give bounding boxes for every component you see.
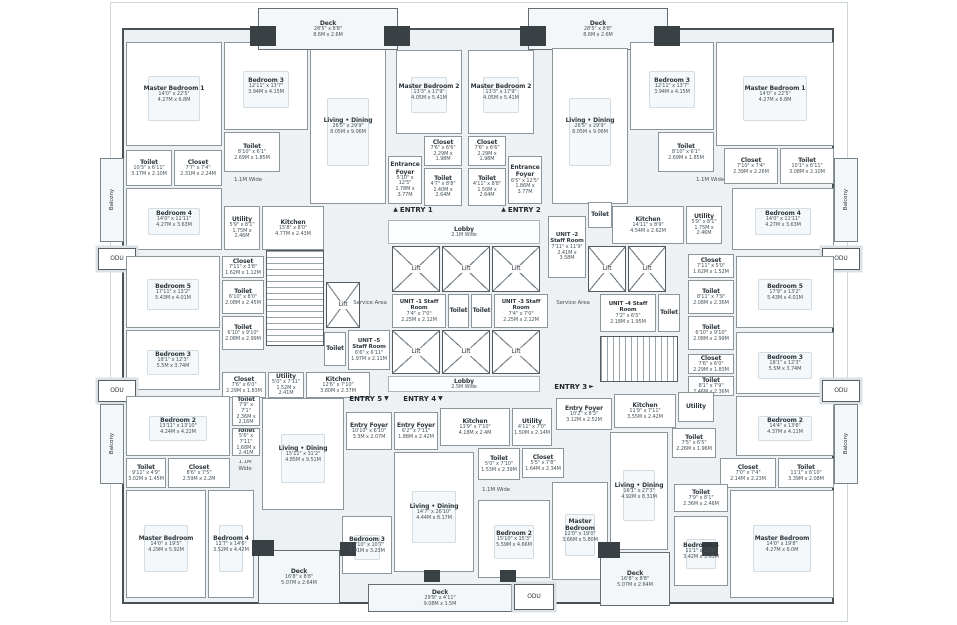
- master-bedroom-2-left-dimensions: 4.05M x 5.41M: [411, 96, 447, 102]
- living-dining-bottom-center-dimensions: 4.44M x 8.17M: [416, 516, 452, 522]
- toilet-mb2-right-dimensions: 1.50M x 2.64M: [470, 188, 504, 200]
- toilet-unit2: Toilet: [588, 202, 612, 228]
- lobby-bottom: Lobby2.5M Wide: [388, 376, 540, 392]
- closet-bottom-center-dimensions: 1.64M x 2.34M: [525, 467, 561, 473]
- living-dining-top-right: Living • Dining26'5" x 29'9"8.05M x 9.06…: [552, 48, 628, 204]
- closet-mb1-left: Closet7'7" x 7'4"2.31M x 2.24M: [174, 150, 222, 186]
- lift-east-1: Lift: [588, 246, 626, 292]
- toilet-bedroom5-east-dimensions: 2.08M x 2.36M: [693, 301, 729, 307]
- corridor-width-bottom-left: 1.1M Wide: [230, 460, 260, 472]
- closet-mb2-right: Closet7'6" x 6'6"2.29M x 1.98M: [468, 136, 506, 166]
- service-area-west: Service Area: [348, 288, 392, 318]
- deck-bottom-right: Deck16'8" x 8'8"5.07M x 2.64M: [600, 552, 670, 606]
- deck-top-right-dimensions: 8.6M x 2.6M: [583, 33, 613, 39]
- toilet-bottom-center-dimensions: 1.53M x 2.39M: [481, 468, 517, 474]
- lift-5-label: Lift: [460, 348, 473, 355]
- entry-3-arrow-icon: ►: [589, 384, 594, 390]
- deck-top-left-dimensions: 8.6M x 2.6M: [313, 33, 343, 39]
- toilet-bedroom3-east-dimensions: 2.08M x 2.99M: [693, 337, 729, 343]
- toilet-unit5-label: Toilet: [326, 345, 344, 352]
- odu-south-center-label: ODU: [527, 593, 540, 600]
- closet-bottom-right-dimensions: 2.14M x 2.23M: [730, 477, 766, 483]
- closet-mb1-right-dimensions: 2.39M x 2.26M: [733, 170, 769, 176]
- balcony-southeast-label: Balcony: [843, 433, 850, 454]
- utility-bottom-right: Utility: [678, 392, 714, 422]
- wall-block: [520, 26, 546, 46]
- lobby-top: Lobby2.1M Wide: [388, 220, 540, 244]
- utility-bottom-center-dimensions: 1.50M x 2.14M: [514, 431, 550, 437]
- toilet-mb2-left-dimensions: 1.40M x 2.64M: [426, 188, 460, 200]
- bedroom-3-top-left: Bedroom 312'11" x 13'7"3.94M x 4.15M: [224, 42, 308, 130]
- toilet-bedroom3-right: Toilet8'10" x 6'1"2.69M x 1.85M: [658, 132, 714, 172]
- balcony-west: Balcony4'5" x 12'10"1.35M x 3.91M: [100, 158, 124, 242]
- toilet-core-1-label: Toilet: [450, 307, 468, 314]
- kitchen-bottom-right: Kitchen11'9" x 7'11"3.55M x 2.42M: [614, 394, 676, 428]
- entrance-foyer-1-label: Entrance Foyer: [390, 161, 420, 175]
- toilet-bottom-left-1-dimensions: 7'9" x 7'1": [234, 403, 258, 415]
- bedroom-4-west-dimensions: 4.27M x 3.63M: [156, 223, 192, 229]
- unit-2-staff-room-label: UNIT -2 Staff Room: [550, 232, 584, 245]
- toilet-unit5: Toilet: [324, 332, 346, 366]
- toilet-mb2-right: Toilet4'11" x 8'8"1.50M x 2.64M: [468, 168, 506, 206]
- entry-4-label: ENTRY 4: [403, 395, 436, 403]
- closet-bedroom5-east-dimensions: 1.62M x 1.52M: [693, 270, 729, 276]
- lift-east-1-label: Lift: [601, 265, 614, 272]
- entry-foyer-5: Entry Foyer10'10" x 6'10"3.3M x 2.07M: [346, 412, 392, 450]
- living-dining-bottom-right: Living • Dining16'1" x 27'3"4.92M x 8.31…: [610, 432, 668, 550]
- master-bedroom-1-right: Master Bedroom 114'0" x 22'5"4.27M x 6.8…: [716, 42, 834, 146]
- unit-1-staff-room-label: UNIT -1 Staff Room: [394, 299, 444, 312]
- odu-west-label: ODU: [110, 255, 123, 262]
- closet-bedroom5-west-dimensions: 1.62M x 1.12M: [225, 271, 261, 277]
- entry-5-label: ENTRY 5: [349, 395, 382, 403]
- lift-2-label: Lift: [460, 265, 473, 272]
- entry-1-label: ENTRY 1: [400, 206, 433, 214]
- unit-4-staff-room-label: UNIT -4 Staff Room: [602, 301, 654, 314]
- closet-mb1-left-dimensions: 2.31M x 2.24M: [180, 172, 216, 178]
- toilet-bedroom5-east: Toilet8'11" x 7'9"2.08M x 2.36M: [688, 280, 734, 314]
- bedroom-4-bottom-right-dimensions: 3.42M x 3.65M: [683, 555, 719, 561]
- toilet-mb1-right: Toilet10'1" x 6'11"3.08M x 2.10M: [780, 148, 834, 184]
- entry-2-arrow-icon: ▲: [501, 207, 506, 213]
- balcony-southwest-label: Balcony: [109, 433, 116, 454]
- wall-block: [598, 542, 620, 558]
- entry-5: ENTRY 5▼: [344, 392, 394, 406]
- lift-east-2: Lift: [628, 246, 666, 292]
- toilet-core-1: Toilet: [448, 294, 469, 328]
- entry-5-arrow-icon: ▼: [384, 396, 389, 402]
- bedroom-4-west: Bedroom 414'0" x 11'11"4.27M x 3.63M: [126, 188, 222, 250]
- toilet-mb1-left-dimensions: 3.17M x 2.10M: [131, 172, 167, 178]
- odu-southeast-label: ODU: [834, 387, 847, 394]
- toilet-bedroom3-left-dimensions: 2.69M x 1.85M: [234, 156, 270, 162]
- entrance-foyer-2-dimensions: 1.86M x 3.77M: [510, 184, 540, 196]
- toilet-bottom-center: Toilet5'0" x 7'10"1.53M x 2.39M: [478, 448, 520, 480]
- utility-east: Utility5'9" x 8'1"1.75M x 2.46M: [686, 206, 722, 244]
- lift-6-label: Lift: [510, 348, 523, 355]
- toilet-bottom-right-1: Toilet7'5" x 6'5"2.26M x 1.96M: [672, 428, 716, 458]
- odu-southwest-label: ODU: [110, 387, 123, 394]
- utility-west: Utility5'9" x 8'1"1.75M x 2.46M: [224, 206, 260, 250]
- lift-4: Lift: [392, 330, 440, 374]
- master-bedroom-bottom-left-dimensions: 4.29M x 5.92M: [148, 548, 184, 554]
- entry-foyer-4: Entry Foyer6'2" x 7'11"1.88M x 2.42M: [394, 412, 438, 450]
- toilet-bedroom3-left: Toilet8'10" x 6'1"2.69M x 1.85M: [224, 132, 280, 172]
- entrance-foyer-1-dimensions: 1.78M x 3.77M: [390, 187, 420, 199]
- corridor-width-top-right-label: 1.1M Wide: [696, 177, 724, 184]
- corridor-width-bottom-left-label: 1.1M Wide: [231, 460, 259, 472]
- closet-mb2-left: Closet7'6" x 6'6"2.29M x 1.98M: [424, 136, 462, 166]
- toilet-unit4: Toilet: [658, 294, 680, 332]
- entry-foyer-3: Entry Foyer10'2" x 8'3"3.12M x 2.52M: [556, 398, 612, 430]
- toilet-bottom-right-3: Toilet7'9" x 8'1"2.36M x 2.46M: [674, 484, 728, 512]
- lift-3: Lift: [492, 246, 540, 292]
- lobby-bottom-dimensions: 2.5M Wide: [451, 385, 476, 391]
- lift-1: Lift: [392, 246, 440, 292]
- toilet-unit4-label: Toilet: [660, 309, 678, 316]
- bedroom-2-bottom-right-dimensions: 4.37M x 4.11M: [767, 430, 803, 436]
- toilet-bottom-right-2: Toilet11'1" x 6'10"3.39M x 2.08M: [778, 458, 834, 488]
- service-area-west-label: Service Area: [353, 300, 387, 307]
- corridor-width-top-left: 1.1M Wide: [228, 174, 268, 186]
- bedroom-4-east: Bedroom 414'0" x 11'11"4.27M x 3.63M: [732, 188, 834, 250]
- bedroom-3-top-left-dimensions: 3.94M x 4.15M: [248, 90, 284, 96]
- toilet-mb1-left: Toilet10'3" x 6'11"3.17M x 2.10M: [126, 150, 172, 186]
- lift-east-2-label: Lift: [641, 265, 654, 272]
- toilet-bottom-left-3: Toilet9'11" x 4'9"3.02M x 1.45M: [126, 458, 166, 488]
- entrance-foyer-1: Entrance Foyer5'10" x 12'5"1.78M x 3.77M: [388, 156, 422, 204]
- master-bedroom-1-left: Master Bedroom 114'0" x 22'5"4.27M x 6.8…: [126, 42, 222, 146]
- odu-southeast: ODU: [822, 380, 860, 402]
- bedroom-2-bottom-left-dimensions: 4.24M x 4.22M: [160, 430, 196, 436]
- utility-bottom-right-label: Utility: [686, 403, 706, 410]
- toilet-bottom-left-1: Toilet7'9" x 7'1"2.36M x 2.16M: [232, 396, 260, 426]
- toilet-bottom-left-2-dimensions: 5'6" x 7'11": [234, 434, 258, 446]
- wall-block: [250, 26, 276, 46]
- master-bedroom-bottom-left: Master Bedroom14'0" x 19'5"4.29M x 5.92M: [126, 490, 206, 598]
- closet-mb2-left-dimensions: 2.29M x 1.98M: [426, 152, 460, 164]
- bedroom-2-bottom-center-dimensions: 5.59M x 4.66M: [496, 543, 532, 549]
- closet-west-2-dimensions: 2.29M x 1.83M: [226, 389, 262, 395]
- bedroom-3-west-dimensions: 5.5M x 3.74M: [157, 364, 190, 370]
- lift-2: Lift: [442, 246, 490, 292]
- stairs-west: [266, 250, 324, 346]
- wall-block: [252, 540, 274, 556]
- unit-4-staff-room: UNIT -4 Staff Room7'2" x 6'5"2.18M x 1.9…: [600, 294, 656, 332]
- master-bedroom-bottom-center-dimensions: 3.66M x 5.80M: [562, 538, 598, 544]
- closet-bedroom5-west: Closet7'11" x 3'8"1.62M x 1.12M: [222, 256, 264, 278]
- bedroom-5-west: Bedroom 517'11" x 13'2"5.43M x 4.01M: [126, 256, 220, 328]
- unit-4-staff-room-dimensions: 2.18M x 1.95M: [610, 320, 646, 326]
- lift-4-label: Lift: [410, 348, 423, 355]
- toilet-bedroom3-right-dimensions: 2.69M x 1.85M: [668, 156, 704, 162]
- lobby-top-dimensions: 2.1M Wide: [451, 233, 476, 239]
- lift-5: Lift: [442, 330, 490, 374]
- bedroom-3-east: Bedroom 318'1" x 12'3"5.5M x 3.74M: [736, 332, 834, 394]
- living-dining-bottom-right-dimensions: 4.92M x 8.31M: [621, 495, 657, 501]
- toilet-bottom-right-2-dimensions: 3.39M x 2.08M: [788, 477, 824, 483]
- deck-bottom-right-dimensions: 5.07M x 2.64M: [617, 583, 653, 589]
- deck-bottom-left: Deck16'8" x 8'8"5.07M x 2.64M: [258, 550, 340, 604]
- bedroom-5-east-dimensions: 5.43M x 4.01M: [767, 296, 803, 302]
- entry-2-label: ENTRY 2: [508, 206, 541, 214]
- toilet-bedroom3-east: Toilet6'10" x 9'10"2.08M x 2.99M: [688, 316, 734, 350]
- closet-mb1-right: Closet7'10" x 7'4"2.39M x 2.26M: [724, 148, 778, 184]
- toilet-unit2-label: Toilet: [591, 211, 609, 218]
- closet-bedroom5-east: Closet7'11" x 5'0"1.62M x 1.52M: [688, 254, 734, 278]
- toilet-bottom-left-2-dimensions: 1.68M x 2.41M: [234, 446, 258, 456]
- bedroom-2-bottom-right: Bedroom 214'4" x 13'6"4.37M x 4.11M: [736, 396, 834, 456]
- balcony-east: Balcony4'5" x 12'2"1.35M x 3.71M: [834, 158, 858, 242]
- unit-5-staff-room-label: UNIT -5 Staff Room: [350, 338, 388, 351]
- living-dining-top-left-dimensions: 8.05M x 9.06M: [330, 130, 366, 136]
- balcony-southwest: Balcony4'5" x 12'7"1.35M x 3.84M: [100, 404, 124, 484]
- corridor-width-top-right: 1.1M Wide: [690, 174, 730, 186]
- deck-bottom-center: Deck29'9" x 4'11"9.08M x 1.5M: [368, 584, 512, 612]
- master-bedroom-2-right-dimensions: 4.05M x 5.41M: [483, 96, 519, 102]
- bedroom-3-east-dimensions: 5.5M x 3.74M: [769, 367, 802, 373]
- kitchen-bottom-center-dimensions: 4.18M x 2.4M: [459, 431, 492, 437]
- closet-east-2-dimensions: 2.29M x 1.83M: [693, 368, 729, 374]
- toilet-mb2-left: Toilet4'7" x 8'8"1.40M x 2.64M: [424, 168, 462, 206]
- corridor-width-bottom-center: 1.1M Wide: [478, 484, 514, 496]
- living-dining-top-right-dimensions: 8.05M x 9.06M: [572, 130, 608, 136]
- bedroom-3-west: Bedroom 318'1" x 12'3"5.5M x 3.74M: [126, 330, 220, 390]
- entry-3: ENTRY 3►: [542, 380, 606, 394]
- kitchen-east: Kitchen14'11" x 8'9"4.54M x 2.62M: [612, 206, 684, 244]
- bedroom-4-bottom-left: Bedroom 411'7" x 14'6"3.52M x 4.42M: [208, 490, 254, 598]
- entry-2: ▲ENTRY 2: [494, 202, 548, 218]
- unit-3-staff-room: UNIT -3 Staff Room7'4" x 7'0"2.25M x 2.1…: [494, 294, 548, 328]
- odu-south-center: ODU: [514, 584, 554, 610]
- wall-block: [654, 26, 680, 46]
- unit-5-staff-room-dimensions: 1.97M x 2.11M: [351, 357, 387, 363]
- service-area-east: Service Area: [544, 288, 602, 318]
- closet-mb2-right-dimensions: 2.29M x 1.98M: [470, 152, 504, 164]
- deck-bottom-left-dimensions: 5.07M x 2.64M: [281, 581, 317, 587]
- toilet-bedroom3-west-dimensions: 2.08M x 2.99M: [225, 337, 261, 343]
- entry-4-arrow-icon: ▼: [438, 396, 443, 402]
- entry-foyer-5-dimensions: 3.3M x 2.07M: [353, 435, 386, 441]
- closet-bottom-left-dimensions: 2.59M x 2.2M: [183, 477, 216, 483]
- entry-foyer-4-dimensions: 1.88M x 2.42M: [398, 435, 434, 441]
- entry-foyer-3-dimensions: 3.12M x 2.52M: [566, 418, 602, 424]
- entrance-foyer-2-label: Entrance Foyer: [510, 164, 540, 178]
- wall-block: [424, 570, 440, 582]
- closet-bottom-left: Closet8'6" x 7'5"2.59M x 2.2M: [168, 458, 230, 488]
- closet-bottom-center: Closet5'5" x 7'8"1.64M x 2.34M: [522, 448, 564, 478]
- lift-3-label: Lift: [510, 265, 523, 272]
- balcony-west-label: Balcony: [109, 189, 116, 210]
- living-dining-bottom-center: Living • Dining14'7" x 26'10"4.44M x 8.1…: [394, 452, 474, 572]
- unit-3-staff-room-dimensions: 2.25M x 2.12M: [503, 318, 539, 324]
- bedroom-3-bottom-center-dimensions: 3.91M x 3.23M: [349, 549, 385, 555]
- kitchen-west-dimensions: 4.77M x 2.43M: [275, 232, 311, 238]
- stairs-east: [600, 336, 678, 382]
- closet-east-2: Closet7'6" x 6'0"2.29M x 1.83M: [688, 354, 734, 374]
- kitchen-bottom-center: Kitchen13'9" x 7'10"4.18M x 2.4M: [440, 408, 510, 446]
- entry-1: ▲ENTRY 1: [386, 202, 440, 218]
- deck-bottom-center-dimensions: 9.08M x 1.5M: [424, 602, 457, 608]
- utility-west-dimensions: 1.75M x 2.46M: [226, 229, 258, 241]
- living-dining-bottom-left: Living • Dining15'11" x 31'2"4.85M x 9.5…: [262, 398, 344, 510]
- utility-east-dimensions: 1.75M x 2.46M: [688, 226, 720, 238]
- toilet-bottom-left-3-dimensions: 3.02M x 1.45M: [128, 477, 164, 483]
- wall-block: [384, 26, 410, 46]
- unit-5-staff-room: UNIT -5 Staff Room6'6" x 6'11"1.97M x 2.…: [348, 330, 390, 370]
- bedroom-4-east-dimensions: 4.27M x 3.63M: [765, 223, 801, 229]
- balcony-east-label: Balcony: [843, 189, 850, 210]
- closet-bottom-right: Closet7'0" x 7'4"2.14M x 2.23M: [720, 458, 776, 488]
- toilet-core-2-label: Toilet: [473, 307, 491, 314]
- toilet-bottom-right-1-dimensions: 2.26M x 1.96M: [676, 447, 712, 453]
- unit-1-staff-room-dimensions: 2.25M x 2.12M: [401, 318, 437, 324]
- toilet-bedroom5-west-dimensions: 2.08M x 2.45M: [225, 301, 261, 307]
- kitchen-bottom-right-dimensions: 3.55M x 2.42M: [627, 415, 663, 421]
- bedroom-2-bottom-center: Bedroom 215'10" x 15'3"5.59M x 4.66M: [478, 500, 550, 578]
- master-bedroom-2-right: Master Bedroom 213'3" x 17'9"4.05M x 5.4…: [468, 50, 534, 134]
- master-bedroom-bottom-right-dimensions: 4.27M x 6.0M: [766, 548, 799, 554]
- unit-3-staff-room-label: UNIT -3 Staff Room: [496, 299, 546, 312]
- toilet-core-2: Toilet: [471, 294, 492, 328]
- living-dining-bottom-left-dimensions: 4.85M x 9.51M: [285, 458, 321, 464]
- master-bedroom-bottom-center-label: Master Bedroom: [554, 518, 606, 532]
- entrance-foyer-2: Entrance Foyer6'5" x 12'5"1.86M x 3.77M: [508, 156, 542, 204]
- entry-4: ENTRY 4▼: [398, 392, 448, 406]
- utility-west-2: Utility5'0" x 7'11"1.52M x 2.41M: [268, 372, 304, 398]
- entry-3-label: ENTRY 3: [554, 383, 587, 391]
- toilet-mb1-right-dimensions: 3.08M x 2.10M: [789, 170, 825, 176]
- lift-6: Lift: [492, 330, 540, 374]
- master-bedroom-1-left-dimensions: 4.27M x 6.8M: [158, 98, 191, 104]
- deck-top-left: Deck28'5" x 8'8"8.6M x 2.6M: [258, 8, 398, 50]
- bedroom-5-east: Bedroom 517'9" x 13'2"5.43M x 4.01M: [736, 256, 834, 328]
- utility-bottom-center: Utility4'11" x 7'0"1.50M x 2.14M: [512, 408, 552, 446]
- bedroom-4-bottom-right: Bedroom 411'1" x 12'0"3.42M x 3.65M: [674, 516, 728, 586]
- kitchen-east-dimensions: 4.54M x 2.62M: [630, 229, 666, 235]
- toilet-bedroom5-west: Toilet6'10" x 8'0"2.08M x 2.45M: [222, 280, 264, 314]
- master-bedroom-2-left: Master Bedroom 213'3" x 17'9"4.05M x 5.4…: [396, 50, 462, 134]
- unit-2-staff-room: UNIT -2 Staff Room7'11" x 11'9"2.41M x 3…: [548, 216, 586, 278]
- utility-west-2-dimensions: 1.52M x 2.41M: [270, 386, 302, 398]
- odu-east-label: ODU: [834, 255, 847, 262]
- corridor-width-top-left-label: 1.1M Wide: [234, 177, 262, 184]
- unit-1-staff-room: UNIT -1 Staff Room7'4" x 7'0"2.25M x 2.1…: [392, 294, 446, 328]
- toilet-bottom-left-2: Toilet5'6" x 7'11"1.68M x 2.41M: [232, 428, 260, 456]
- closet-west-2: Closet7'6" x 6'0"2.29M x 1.83M: [222, 372, 266, 398]
- living-dining-top-left: Living • Dining26'5" x 29'9"8.05M x 9.06…: [310, 48, 386, 204]
- kitchen-west: Kitchen15'8" x 8'0"4.77M x 2.43M: [262, 206, 324, 250]
- corridor-width-bottom-center-label: 1.1M Wide: [482, 487, 510, 494]
- bedroom-3-top-right: Bedroom 312'11" x 13'7"3.94M x 4.15M: [630, 42, 714, 130]
- lift-1-label: Lift: [410, 265, 423, 272]
- floor-plan: Master Bedroom 114'0" x 22'5"4.27M x 6.8…: [0, 0, 957, 625]
- bedroom-3-bottom-center: Bedroom 312'10" x 10'7"3.91M x 3.23M: [342, 516, 392, 574]
- toilet-bottom-right-3-dimensions: 2.36M x 2.46M: [683, 502, 719, 508]
- toilet-bottom-left-1-dimensions: 2.36M x 2.16M: [234, 415, 258, 426]
- unit-2-staff-room-dimensions: 2.41M x 3.58M: [550, 251, 584, 263]
- toilet-bedroom3-west: Toilet6'10" x 9'10"2.08M x 2.99M: [222, 316, 264, 350]
- service-area-east-label: Service Area: [556, 300, 590, 307]
- bedroom-2-bottom-left: Bedroom 213'11" x 13'10"4.24M x 4.22M: [126, 396, 230, 456]
- balcony-southeast: Balcony4'5" x 12'7"1.35M x 3.84M: [834, 404, 858, 484]
- master-bedroom-1-right-dimensions: 4.27M x 6.8M: [759, 98, 792, 104]
- bedroom-3-top-right-dimensions: 3.94M x 4.15M: [654, 90, 690, 96]
- entry-1-arrow-icon: ▲: [393, 207, 398, 213]
- bedroom-5-west-dimensions: 5.43M x 4.01M: [155, 296, 191, 302]
- master-bedroom-bottom-right: Master Bedroom14'0" x 19'8"4.27M x 6.0M: [730, 490, 834, 598]
- bedroom-4-bottom-left-dimensions: 3.52M x 4.42M: [213, 548, 249, 554]
- wall-block: [500, 570, 516, 582]
